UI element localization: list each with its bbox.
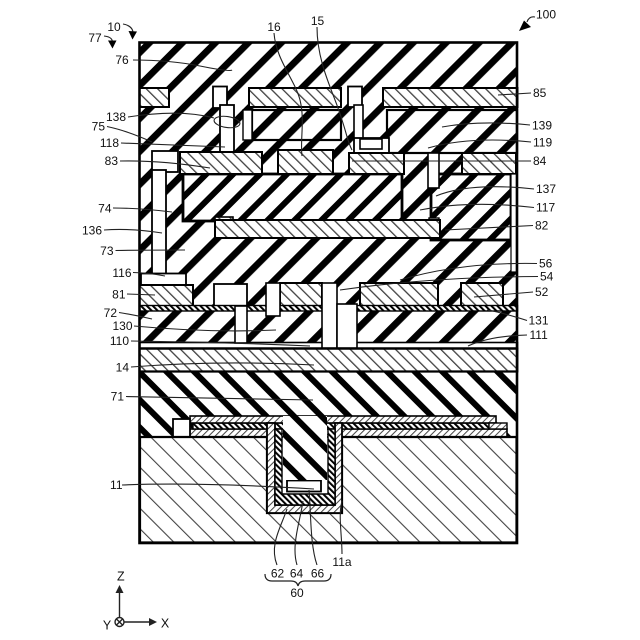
svg-text:136: 136 <box>82 224 102 238</box>
svg-text:71: 71 <box>111 390 125 404</box>
svg-text:62: 62 <box>271 567 285 581</box>
svg-text:54: 54 <box>540 270 554 284</box>
svg-text:100: 100 <box>536 8 556 22</box>
svg-text:74: 74 <box>98 202 112 216</box>
svg-text:119: 119 <box>533 136 552 150</box>
svg-text:66: 66 <box>311 567 325 581</box>
svg-text:110: 110 <box>110 334 129 348</box>
svg-text:82: 82 <box>535 219 549 233</box>
svg-text:117: 117 <box>536 201 555 215</box>
svg-text:81: 81 <box>112 288 126 302</box>
svg-text:118: 118 <box>100 136 119 150</box>
svg-text:56: 56 <box>539 257 553 271</box>
svg-text:73: 73 <box>100 244 114 258</box>
svg-text:11a: 11a <box>332 555 351 569</box>
svg-text:14: 14 <box>116 361 130 375</box>
svg-text:15: 15 <box>311 14 325 28</box>
svg-text:84: 84 <box>533 154 547 168</box>
svg-text:11: 11 <box>110 478 123 492</box>
svg-text:116: 116 <box>112 266 131 280</box>
svg-text:76: 76 <box>115 53 129 67</box>
svg-text:52: 52 <box>535 285 549 299</box>
svg-text:139: 139 <box>532 119 552 133</box>
svg-text:60: 60 <box>290 586 304 600</box>
svg-text:77: 77 <box>88 31 102 45</box>
svg-text:131: 131 <box>529 314 549 328</box>
svg-text:85: 85 <box>533 86 547 100</box>
svg-text:83: 83 <box>105 154 119 168</box>
svg-text:X: X <box>161 617 170 631</box>
svg-text:72: 72 <box>104 306 118 320</box>
svg-text:Y: Y <box>103 619 112 633</box>
svg-text:111: 111 <box>530 328 549 342</box>
svg-text:75: 75 <box>92 120 106 134</box>
svg-text:10: 10 <box>107 20 121 34</box>
svg-text:137: 137 <box>536 182 556 196</box>
svg-text:16: 16 <box>267 20 281 34</box>
svg-text:130: 130 <box>112 319 132 333</box>
svg-text:64: 64 <box>290 567 304 581</box>
svg-text:Z: Z <box>117 570 125 584</box>
svg-text:138: 138 <box>106 110 126 124</box>
